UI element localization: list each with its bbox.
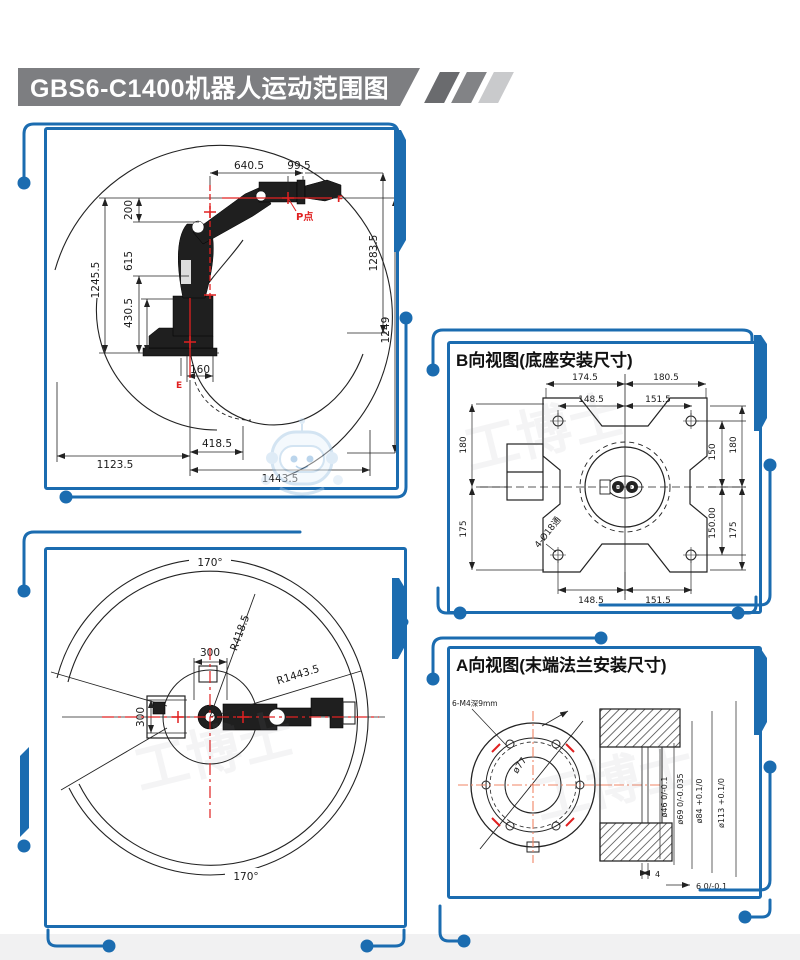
radius-inner: R418.5 bbox=[228, 613, 252, 652]
dim-175-left: 175 bbox=[459, 520, 469, 537]
title-banner: GBS6-C1400机器人运动范围图 bbox=[18, 68, 420, 106]
side-view-panel: 640.5 99.5 200 615 1245.5 430.5 1283.5 1… bbox=[44, 127, 399, 490]
dim-174-5: 174.5 bbox=[572, 373, 598, 383]
a-view-dimension-labels: ø77 6-M4深9mm ø46 0/-0.1 ø69 0/-0.035 ø84… bbox=[452, 699, 727, 891]
dim-69: ø69 0/-0.035 bbox=[676, 773, 685, 824]
a-view-panel: A向视图(末端法兰安装尺寸) bbox=[447, 646, 762, 899]
dim-1245-5: 1245.5 bbox=[90, 262, 102, 299]
dim-160: 160 bbox=[190, 364, 210, 376]
point-label-f: F bbox=[337, 195, 343, 205]
robot-side-silhouette bbox=[143, 180, 341, 356]
dim-200: 200 bbox=[123, 200, 135, 220]
dim-148-5-bottom: 148.5 bbox=[578, 596, 604, 606]
b-view-title: B向视图(底座安装尺寸) bbox=[456, 350, 633, 370]
dim-151-5-bottom: 151.5 bbox=[645, 596, 671, 606]
dim-180-5: 180.5 bbox=[653, 373, 679, 383]
angle-top: 170° bbox=[197, 557, 222, 569]
dim-46: ø46 0/-0.1 bbox=[660, 776, 669, 817]
holes-note: 4-Ø18通 bbox=[532, 515, 563, 551]
dim-1443-5: 1443.5 bbox=[262, 473, 299, 485]
dim-148-5-top: 148.5 bbox=[578, 395, 604, 405]
bolt-note: 6-M4深9mm bbox=[452, 699, 498, 708]
page-background: GBS6-C1400机器人运动范围图 bbox=[0, 0, 800, 960]
dim-180-right: 180 bbox=[729, 436, 739, 453]
b-view-panel: B向视图(底座安装尺寸) bbox=[447, 341, 762, 614]
dim-151-5-top: 151.5 bbox=[645, 395, 671, 405]
b-view-drawing: B向视图(底座安装尺寸) bbox=[450, 344, 759, 611]
dim-1123-5: 1123.5 bbox=[97, 459, 134, 471]
top-view-drawing: 170° 170° 300 300 R418.5 R1443.5 bbox=[47, 550, 404, 925]
dim-77: ø77 bbox=[511, 756, 529, 776]
dim-84: ø84 +0.1/0 bbox=[695, 779, 704, 824]
top-view-panel: 170° 170° 300 300 R418.5 R1443.5 bbox=[44, 547, 407, 928]
dim-150-right: 150 bbox=[708, 443, 718, 460]
side-view-drawing: 640.5 99.5 200 615 1245.5 430.5 1283.5 1… bbox=[47, 130, 396, 487]
a-view-drawing: A向视图(末端法兰安装尺寸) bbox=[450, 649, 759, 896]
dim-175-right: 175 bbox=[729, 521, 739, 538]
footer-strip bbox=[0, 934, 800, 960]
bolt-holes bbox=[550, 413, 699, 563]
page-title: GBS6-C1400机器人运动范围图 bbox=[30, 69, 389, 105]
dim-113: ø113 +0.1/0 bbox=[717, 778, 726, 828]
dim-180-left: 180 bbox=[459, 436, 469, 453]
point-label-p: P点 bbox=[296, 210, 313, 223]
dim-430-5: 430.5 bbox=[123, 298, 135, 328]
robot-top-silhouette bbox=[147, 666, 355, 738]
dim-step-6: 6 0/-0.1 bbox=[696, 882, 727, 891]
dim-150-00-right: 150.00 bbox=[708, 507, 718, 539]
dim-1283-5: 1283.5 bbox=[368, 235, 380, 272]
dim-640-5: 640.5 bbox=[234, 160, 264, 172]
dim-99-5: 99.5 bbox=[287, 160, 310, 172]
b-view-dimension-labels: 174.5 180.5 148.5 151.5 148.5 151.5 180 … bbox=[459, 373, 739, 606]
dim-418-5: 418.5 bbox=[202, 438, 232, 450]
a-view-title: A向视图(末端法兰安装尺寸) bbox=[456, 655, 667, 675]
point-label-e: E bbox=[176, 381, 182, 391]
dim-1249: 1249 bbox=[380, 317, 392, 344]
angle-bottom: 170° bbox=[233, 871, 258, 883]
radius-outer: R1443.5 bbox=[275, 663, 321, 687]
dim-depth-4: 4 bbox=[655, 870, 660, 879]
dim-615: 615 bbox=[123, 251, 135, 271]
